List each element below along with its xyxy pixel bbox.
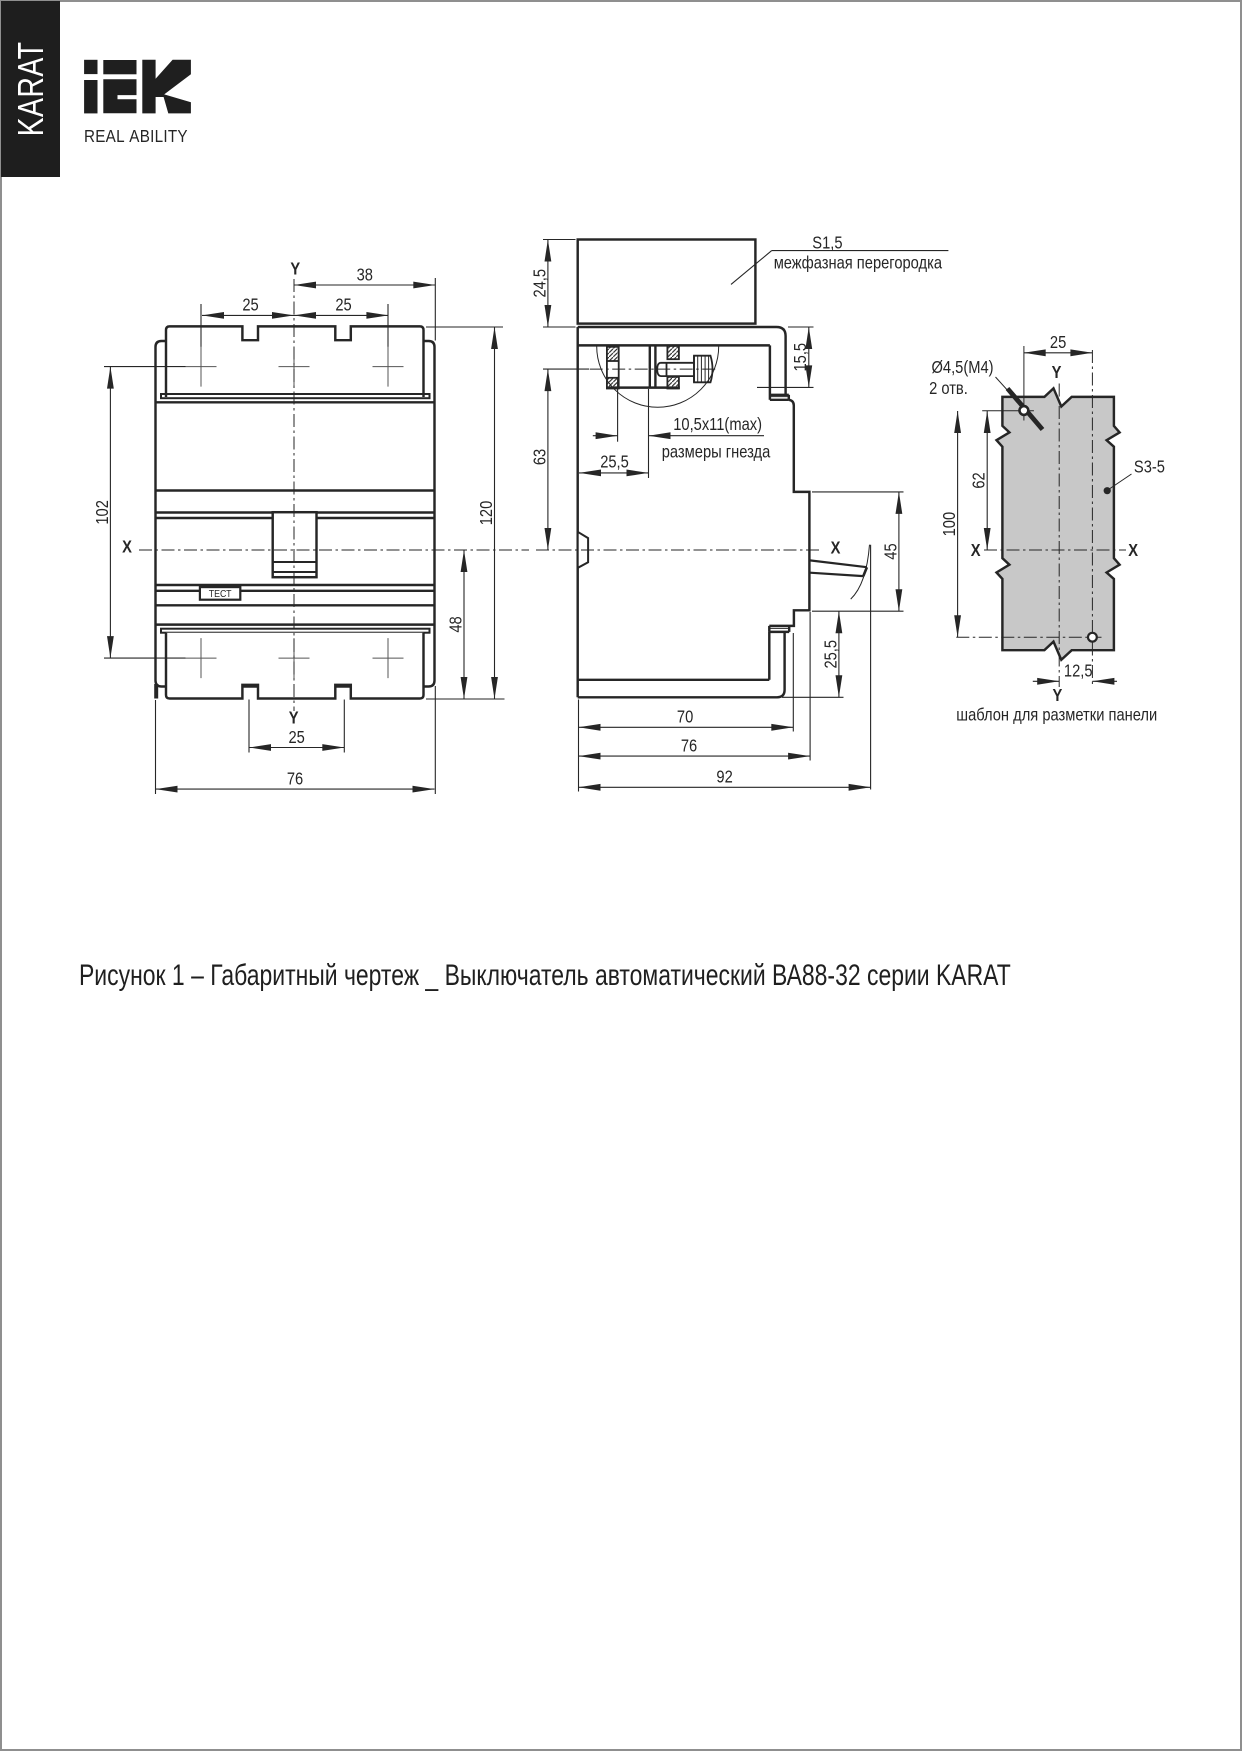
svg-text:100: 100 (940, 512, 959, 537)
svg-text:25: 25 (1050, 333, 1066, 352)
svg-text:X: X (122, 537, 132, 556)
svg-text:120: 120 (477, 501, 496, 526)
svg-text:размеры гнезда: размеры гнезда (662, 442, 771, 461)
svg-text:25: 25 (242, 296, 258, 315)
svg-text:межфазная перегородка: межфазная перегородка (774, 254, 942, 273)
svg-text:Y: Y (1052, 363, 1062, 382)
svg-text:25,5: 25,5 (821, 640, 840, 669)
svg-text:15,5: 15,5 (791, 343, 810, 372)
svg-text:102: 102 (93, 500, 112, 525)
svg-text:2 отв.: 2 отв. (929, 379, 968, 398)
svg-text:ТЕСТ: ТЕСТ (209, 588, 232, 600)
svg-text:10,5x11(max): 10,5x11(max) (673, 415, 762, 434)
svg-text:48: 48 (446, 616, 465, 632)
svg-text:92: 92 (716, 767, 732, 786)
svg-text:76: 76 (287, 769, 303, 788)
svg-text:X: X (831, 538, 841, 557)
svg-text:25: 25 (288, 728, 304, 747)
svg-text:Ø4,5(M4): Ø4,5(M4) (932, 358, 994, 377)
svg-text:76: 76 (681, 736, 697, 755)
svg-text:25: 25 (335, 296, 351, 315)
svg-text:63: 63 (530, 449, 549, 465)
svg-text:24,5: 24,5 (530, 269, 549, 298)
svg-text:X: X (971, 541, 981, 560)
svg-text:S3-5: S3-5 (1134, 457, 1165, 476)
svg-text:12,5: 12,5 (1064, 661, 1093, 680)
svg-text:шаблон для разметки панели: шаблон для разметки панели (956, 705, 1157, 724)
svg-text:Y: Y (290, 259, 300, 278)
svg-text:70: 70 (677, 707, 693, 726)
svg-text:25,5: 25,5 (600, 452, 629, 471)
svg-text:62: 62 (969, 472, 988, 488)
svg-text:45: 45 (881, 543, 900, 559)
svg-text:Y: Y (289, 709, 299, 728)
svg-text:S1,5: S1,5 (812, 233, 842, 252)
svg-text:X: X (1128, 541, 1138, 560)
svg-text:Y: Y (1052, 686, 1062, 705)
svg-text:38: 38 (357, 265, 373, 284)
